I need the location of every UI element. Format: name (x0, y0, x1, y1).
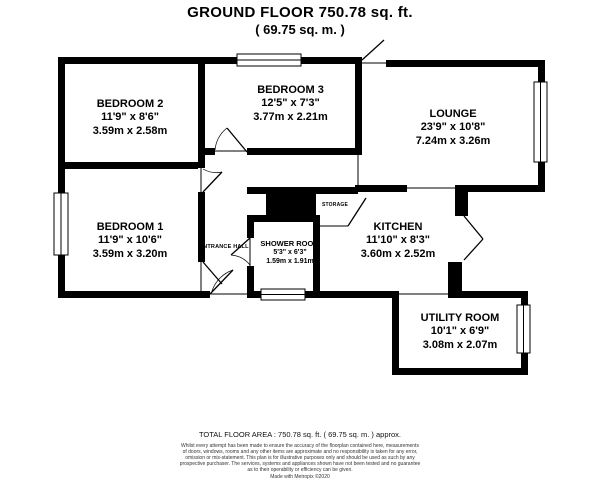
room-label-shower-room: SHOWER ROOM 5'3" x 6'3" 1.59m x 1.91m (249, 239, 331, 266)
bedroom-2-metric: 3.59m x 2.58m (55, 125, 205, 138)
lounge-name: LOUNGE (373, 108, 533, 121)
bedroom-1-name: BEDROOM 1 (55, 221, 205, 234)
bedroom-3-metric: 3.77m x 2.21m (213, 111, 368, 124)
shower-room-name: SHOWER ROOM (249, 239, 331, 248)
metropix-credit: Made with Metropix ©2020 (0, 474, 600, 480)
bedroom-3-name: BEDROOM 3 (213, 84, 368, 97)
room-label-entrance-hall: ENTRANCE HALL (198, 244, 250, 250)
lounge-imperial: 23'9" x 10'8" (373, 121, 533, 134)
room-label-kitchen: KITCHEN 11'10" x 8'3" 3.60m x 2.52m (323, 221, 473, 261)
solid-block (266, 187, 316, 217)
floorplan-page: GROUND FLOOR 750.78 sq. ft. ( 69.75 sq. … (0, 0, 600, 483)
shower-room-metric: 1.59m x 1.91m (249, 257, 331, 266)
bedroom-1-imperial: 11'9" x 10'6" (55, 234, 205, 247)
bedroom-2-imperial: 11'9" x 8'6" (55, 111, 205, 124)
room-label-storage: STORAGE (317, 202, 353, 208)
kitchen-imperial: 11'10" x 8'3" (323, 234, 473, 247)
total-floor-area: TOTAL FLOOR AREA : 750.78 sq. ft. ( 69.7… (0, 430, 600, 439)
lounge-metric: 7.24m x 3.26m (373, 135, 533, 148)
bedroom-1-metric: 3.59m x 3.20m (55, 248, 205, 261)
disclaimer-text: Whilst every attempt has been made to en… (0, 443, 600, 481)
shower-room-imperial: 5'3" x 6'3" (249, 248, 331, 257)
room-label-bedroom-2: BEDROOM 2 11'9" x 8'6" 3.59m x 2.58m (55, 98, 205, 138)
disclaimer-line: as to their operability or efficiency ca… (0, 467, 600, 473)
room-label-bedroom-3: BEDROOM 3 12'5" x 7'3" 3.77m x 2.21m (213, 84, 368, 124)
room-label-bedroom-1: BEDROOM 1 11'9" x 10'6" 3.59m x 3.20m (55, 221, 205, 261)
utility-room-name: UTILITY ROOM (390, 312, 530, 325)
utility-room-metric: 3.08m x 2.07m (390, 339, 530, 352)
bedroom-2-name: BEDROOM 2 (55, 98, 205, 111)
kitchen-name: KITCHEN (323, 221, 473, 234)
room-label-lounge: LOUNGE 23'9" x 10'8" 7.24m x 3.26m (373, 108, 533, 148)
bedroom-3-imperial: 12'5" x 7'3" (213, 97, 368, 110)
kitchen-metric: 3.60m x 2.52m (323, 248, 473, 261)
room-label-utility-room: UTILITY ROOM 10'1" x 6'9" 3.08m x 2.07m (390, 312, 530, 352)
utility-room-imperial: 10'1" x 6'9" (390, 325, 530, 338)
